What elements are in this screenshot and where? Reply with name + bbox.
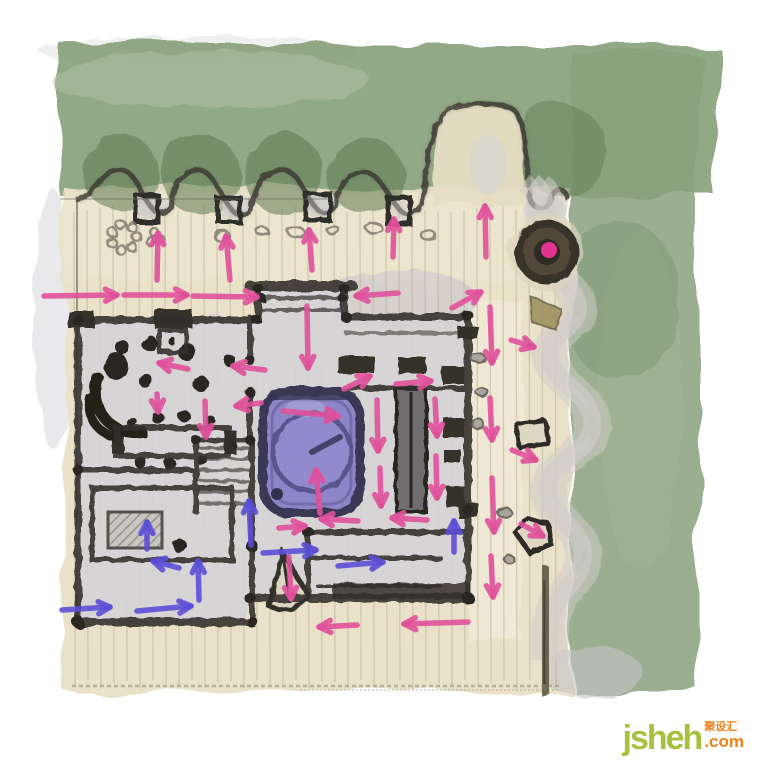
spa-dot <box>271 488 283 500</box>
spa-feature <box>263 391 360 513</box>
olive-strip-core <box>544 580 545 685</box>
arch-gray <box>470 135 506 195</box>
light-green-patch <box>50 52 370 108</box>
tree-well <box>136 196 158 222</box>
stepping-stone <box>515 420 548 448</box>
plan-sketch-svg <box>0 0 760 760</box>
watermark-brand: jsheh <box>623 725 702 752</box>
watermark-suffix: .com <box>704 733 744 750</box>
focal-magenta-dot <box>541 242 557 258</box>
tree-well <box>306 194 330 220</box>
tree-well <box>218 198 240 222</box>
spa-top-bar <box>268 392 356 400</box>
focal-point <box>509 214 585 290</box>
watermark: jsheh 聚设汇 .com <box>623 722 745 752</box>
sketch-canvas: jsheh 聚设汇 .com <box>0 0 760 760</box>
